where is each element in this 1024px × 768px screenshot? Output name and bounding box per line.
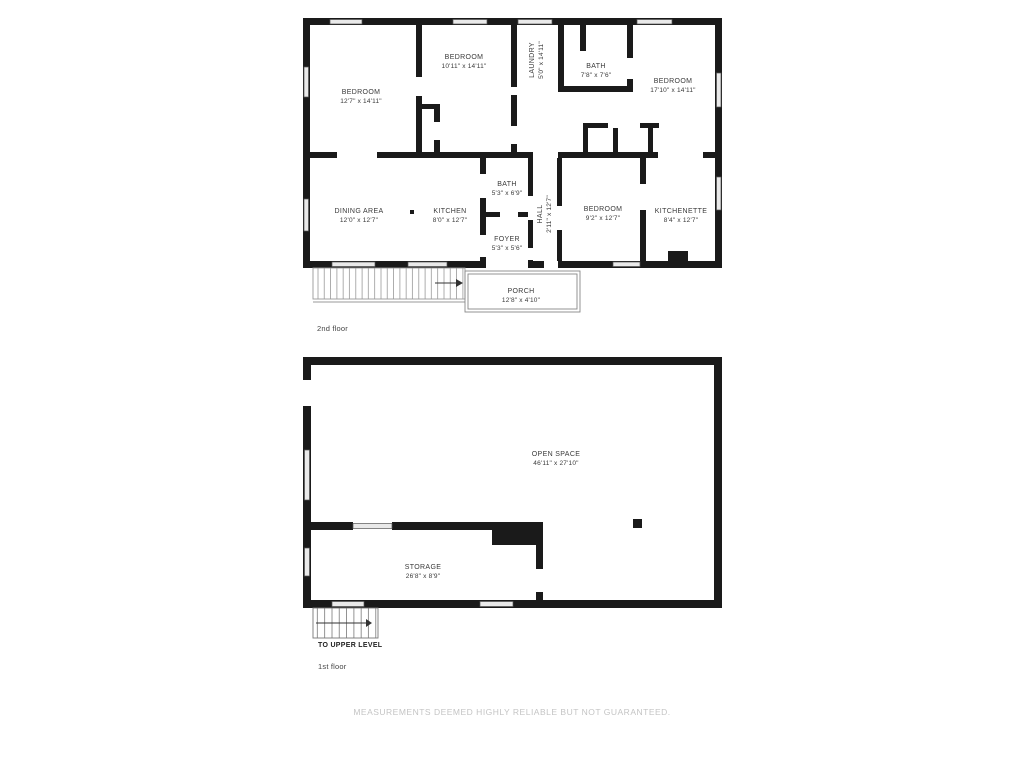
floor1-walls (303, 357, 722, 608)
room-dims: 8'0" x 12'7" (433, 216, 467, 225)
room-label-porch: PORCH 12'8" x 4'10" (502, 287, 540, 305)
room-name: OPEN SPACE (532, 450, 581, 459)
room-dims: 5'3" x 5'6" (492, 244, 523, 253)
room-label-bath-lower: BATH 5'3" x 6'9" (492, 180, 523, 198)
room-label-bedroom-4: BEDROOM 9'2" x 12'7" (584, 205, 623, 223)
room-label-bedroom-3: BEDROOM 17'10" x 14'11" (650, 77, 695, 95)
room-label-kitchenette: KITCHENETTE 8'4" x 12'7" (655, 207, 707, 225)
room-label-foyer: FOYER 5'3" x 5'6" (492, 235, 523, 253)
floor2-walls (303, 18, 722, 268)
room-dims: 10'11" x 14'11" (442, 62, 487, 71)
room-name: BEDROOM (340, 88, 382, 97)
room-label-bath-upper: BATH 7'8" x 7'6" (581, 62, 612, 80)
room-label-bedroom-2: BEDROOM 10'11" x 14'11" (442, 53, 487, 71)
room-name: DINING AREA (335, 207, 384, 216)
stairs-to-upper-level-label: TO UPPER LEVEL (318, 642, 382, 649)
room-name: BEDROOM (584, 205, 623, 214)
room-dims: 9'2" x 12'7" (584, 214, 623, 223)
room-label-open-space: OPEN SPACE 46'11" x 27'10" (532, 450, 581, 468)
room-label-kitchen: KITCHEN 8'0" x 12'7" (433, 207, 467, 225)
room-dims: 5'0" x 14'11" (537, 41, 546, 79)
measurements-disclaimer: MEASUREMENTS DEEMED HIGHLY RELIABLE BUT … (0, 707, 1024, 717)
floor1-stairs (313, 608, 378, 638)
floor2-caption: 2nd floor (317, 324, 348, 333)
room-name: BEDROOM (442, 53, 487, 62)
room-name: PORCH (502, 287, 540, 296)
room-dims: 46'11" x 27'10" (532, 459, 581, 468)
room-dims: 26'8" x 8'9" (405, 572, 442, 581)
room-dims: 12'7" x 14'11" (340, 97, 382, 106)
room-label-dining-area: DINING AREA 12'0" x 12'7" (335, 207, 384, 225)
room-dims: 5'3" x 6'9" (492, 189, 523, 198)
floor2-deck (313, 268, 465, 302)
room-dims: 17'10" x 14'11" (650, 86, 695, 95)
room-name: BEDROOM (650, 77, 695, 86)
room-dims: 12'8" x 4'10" (502, 296, 540, 305)
floor1-caption: 1st floor (318, 662, 346, 671)
room-label-hall: HALL 2'11" x 12'7" (536, 195, 554, 233)
room-name: STORAGE (405, 563, 442, 572)
room-label-storage: STORAGE 26'8" x 8'9" (405, 563, 442, 581)
room-dims: 12'0" x 12'7" (335, 216, 384, 225)
floor1-door-openings (303, 380, 311, 406)
floorplan-canvas (0, 0, 1024, 768)
floor2-plan (303, 18, 722, 312)
room-name: LAUNDRY (528, 41, 537, 79)
room-name: FOYER (492, 235, 523, 244)
floorplan-page: BEDROOM 12'7" x 14'11" BEDROOM 10'11" x … (0, 0, 1024, 768)
room-name: BATH (492, 180, 523, 189)
floor1-plan (303, 357, 722, 638)
room-name: KITCHEN (433, 207, 467, 216)
room-dims: 2'11" x 12'7" (545, 195, 554, 233)
room-name: HALL (536, 195, 545, 233)
room-label-bedroom-1: BEDROOM 12'7" x 14'11" (340, 88, 382, 106)
room-name: KITCHENETTE (655, 207, 707, 216)
room-dims: 8'4" x 12'7" (655, 216, 707, 225)
room-name: BATH (581, 62, 612, 71)
room-dims: 7'8" x 7'6" (581, 71, 612, 80)
room-label-laundry: LAUNDRY 5'0" x 14'11" (528, 41, 546, 79)
